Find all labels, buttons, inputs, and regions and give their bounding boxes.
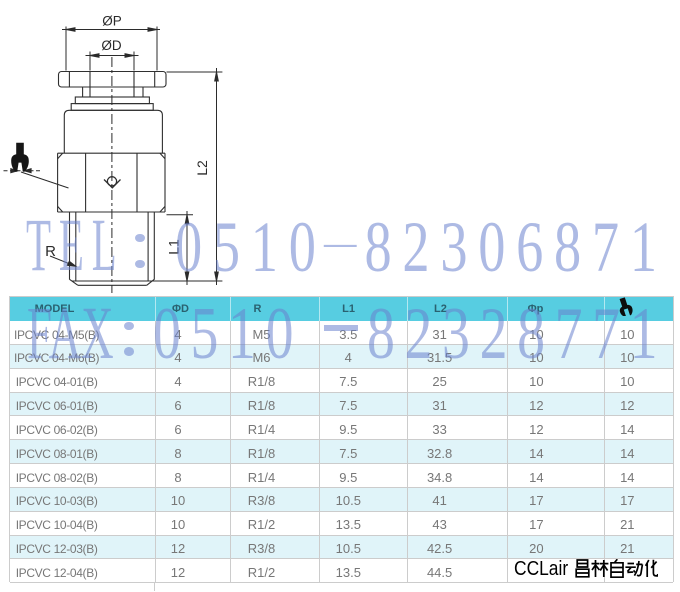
svg-text:ØP: ØP [102, 14, 122, 29]
svg-text:ØD: ØD [101, 38, 122, 53]
svg-text:L2: L2 [194, 160, 210, 176]
